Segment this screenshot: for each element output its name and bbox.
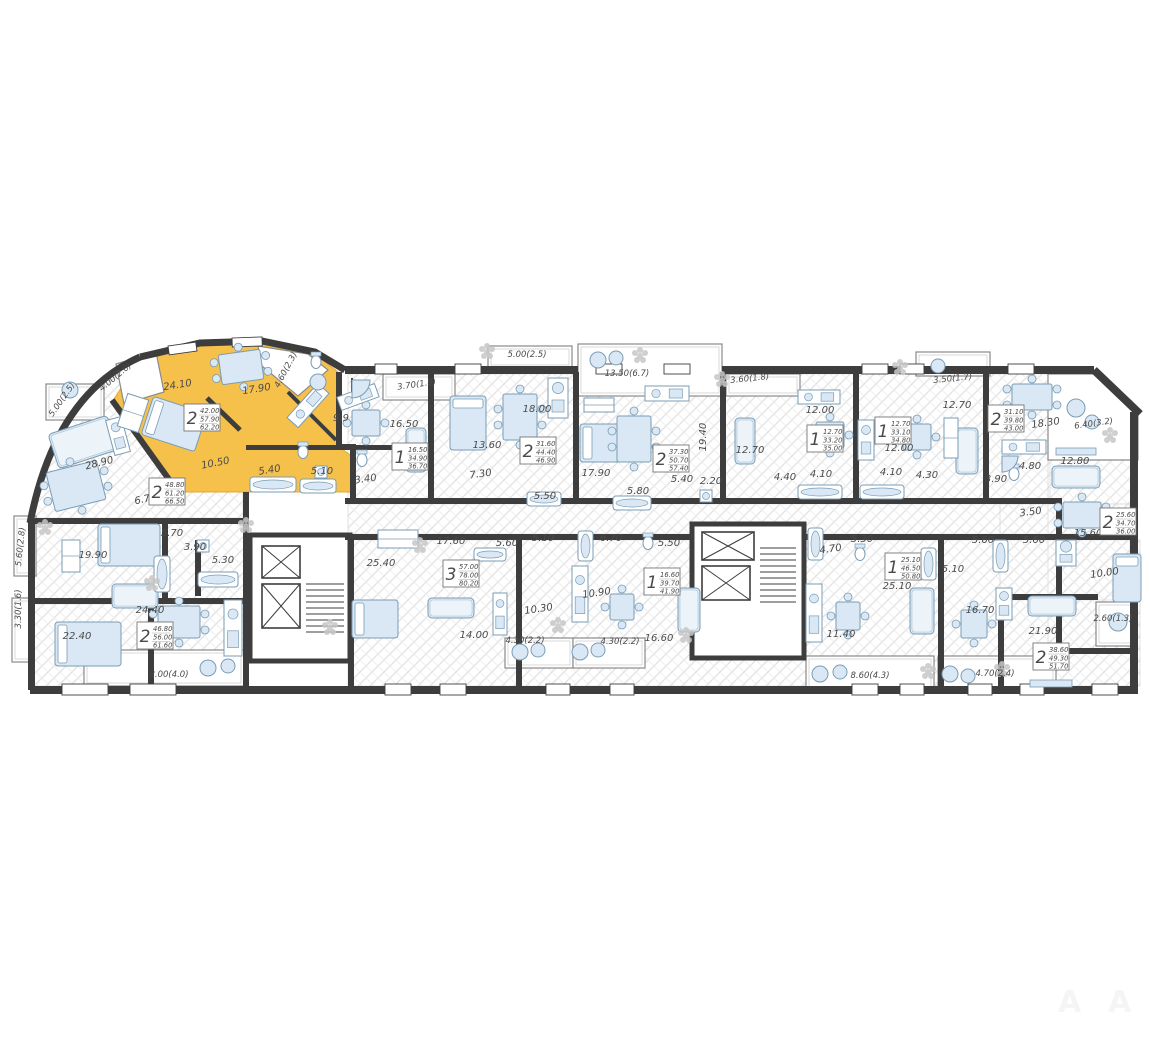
room-area-label: 5.50: [658, 538, 680, 549]
furniture: [613, 496, 651, 510]
furniture: [798, 390, 840, 404]
wall: [573, 372, 579, 502]
window: [440, 684, 466, 695]
balcony-chair-icon: [590, 352, 606, 368]
apartment-area-value: 16.50: [408, 446, 427, 454]
chair-icon: [175, 597, 183, 605]
furniture: [645, 386, 689, 401]
apartment-area-value: 43.00: [1004, 425, 1023, 433]
room-area-label: 5.60: [972, 535, 994, 546]
chair-icon: [1054, 519, 1062, 527]
room-area-label: 4.30: [916, 470, 938, 481]
floor-plan-page: 28.9019.906.705.705.00(2.5)5.60(2.8)248.…: [0, 0, 1150, 1040]
room-area-label: 22.40: [63, 631, 92, 642]
apartment-rooms-count: 2: [656, 450, 667, 470]
room-area-label: 6.70: [600, 533, 622, 544]
balcony-chair-icon: [812, 666, 828, 682]
balcony-area-label: 2.60(1.3): [1093, 614, 1132, 624]
room-area-label: 16.60: [645, 633, 674, 644]
room-area-label: 5.30: [851, 534, 873, 545]
room-area-label: 14.00: [460, 630, 489, 641]
room-area-label: 11.40: [827, 629, 856, 640]
furniture: [921, 548, 936, 580]
chair-icon: [1028, 375, 1036, 383]
apartment-rooms-count: 1: [888, 558, 899, 578]
chair-icon: [618, 621, 626, 629]
furniture: [735, 418, 755, 464]
wall: [516, 540, 522, 686]
apartment-area-value: 16.60: [660, 571, 679, 579]
room-area-label: 5.10: [942, 564, 964, 575]
apartment-area-value: 25.60: [1116, 511, 1135, 519]
room-area-label: 12.80: [1061, 456, 1090, 467]
furniture: [1056, 540, 1076, 566]
apartment-area-value: 50.70: [669, 457, 688, 465]
balcony-area-label: 13.50(6.7): [605, 369, 649, 379]
balcony-area-label: 8.00(4.0): [149, 670, 188, 680]
wall: [30, 518, 246, 524]
furniture: [578, 531, 593, 561]
apartment-area-value: 46.90: [536, 457, 555, 465]
room-area-label: 5.40: [671, 474, 693, 485]
apartment-rooms-count: 2: [523, 442, 534, 462]
tv-icon: [1030, 680, 1072, 687]
wall: [428, 372, 434, 502]
room-area-label: 5.10: [311, 466, 333, 477]
chair-icon: [652, 427, 660, 435]
chair-icon: [861, 612, 869, 620]
apartment-area-value: 12.70: [823, 428, 842, 436]
chair-icon: [630, 407, 638, 415]
room-area-label: 12.70: [943, 400, 972, 411]
furniture: [1113, 554, 1141, 602]
furniture: [352, 600, 398, 638]
balcony-chair-icon: [572, 644, 588, 660]
furniture: [224, 600, 242, 656]
balcony-chair-icon: [221, 659, 235, 673]
window: [664, 364, 690, 374]
floor-plan: 28.9019.906.705.705.00(2.5)5.60(2.8)248.…: [0, 0, 1150, 1040]
apartment-area-value: 34.90: [408, 455, 427, 463]
chair-icon: [1053, 401, 1061, 409]
chair-icon: [1078, 493, 1086, 501]
furniture: [860, 485, 904, 499]
room-area-label: 15.60: [1074, 528, 1103, 539]
tv-icon: [1056, 448, 1096, 455]
chair-icon: [1054, 503, 1062, 511]
chair-icon: [845, 431, 853, 439]
chair-icon: [362, 437, 370, 445]
furniture: [55, 622, 121, 666]
apartment-area-value: 62.20: [200, 424, 219, 432]
wall: [246, 445, 396, 450]
balcony-chair-icon: [942, 666, 958, 682]
wall: [938, 540, 944, 686]
apartment-area-value: 31.60: [536, 440, 555, 448]
furniture: [993, 540, 1008, 572]
chair-icon: [952, 620, 960, 628]
apartment-area-value: 36.70: [408, 463, 427, 471]
toilet-icon: [298, 446, 308, 459]
balcony-area-label: 3.30(1.6): [14, 589, 24, 628]
room-area-label: 12.00: [885, 443, 914, 454]
apartment-area-value: 39.80: [1004, 417, 1023, 425]
room-area-label: 9.9: [333, 413, 349, 424]
room-area-label: 4.10: [880, 467, 902, 478]
chair-icon: [175, 639, 183, 647]
chair-icon: [608, 427, 616, 435]
apartment-rooms-count: 2: [991, 410, 1002, 430]
chair-icon: [844, 593, 852, 601]
apartment-label[interactable]: 112.7033.1034.80: [875, 417, 911, 445]
apartment-area-value: 49.30: [1049, 655, 1068, 663]
apartment-area-value: 36.00: [1116, 528, 1135, 536]
apartment-rooms-count: 2: [187, 409, 198, 429]
apartment-area-value: 37.30: [669, 448, 688, 456]
apartment-area-value: 12.70: [891, 420, 910, 428]
apartment-area-value: 33.10: [891, 429, 910, 437]
room-area-label: 18.00: [523, 404, 552, 415]
chair-icon: [201, 626, 209, 634]
room-area-label: 24.40: [136, 605, 165, 616]
balcony-chair-icon: [931, 359, 945, 373]
table-icon: [503, 394, 537, 440]
room-area-label: 16.50: [390, 419, 419, 430]
furniture: [198, 572, 238, 587]
apartment-area-value: 33.20: [823, 437, 842, 445]
window: [862, 364, 888, 374]
balcony-area-label: 8.60(4.3): [850, 671, 889, 681]
balcony-chair-icon: [833, 665, 847, 679]
window: [385, 684, 411, 695]
room-area-label: 12.00: [806, 405, 835, 416]
apartment-area-value: 57.40: [669, 465, 688, 473]
apartment-area-value: 78.00: [459, 572, 478, 580]
room-area-label: 19.40: [698, 423, 709, 452]
furniture: [1028, 596, 1076, 616]
balcony-chair-icon: [609, 351, 623, 365]
apartment-area-value: 34.70: [1116, 520, 1135, 528]
room-area-label: 3.90: [985, 474, 1007, 485]
chair-icon: [494, 421, 502, 429]
window: [62, 684, 108, 695]
furniture: [300, 479, 336, 493]
watermark-logo: A: [1108, 985, 1131, 1020]
furniture: [944, 418, 958, 458]
apartment-area-value: 34.80: [891, 437, 910, 445]
furniture: [910, 588, 934, 634]
room-area-label: 5.60: [1023, 535, 1045, 546]
furniture: [474, 548, 506, 561]
window: [1092, 684, 1118, 695]
furniture: [493, 593, 507, 635]
wall: [350, 444, 356, 502]
room-area-label: 25.40: [367, 558, 396, 569]
room-area-label: 21.90: [1029, 626, 1058, 637]
chair-icon: [932, 433, 940, 441]
balcony-chair-icon: [961, 669, 975, 683]
room-area-label: 4.40: [774, 472, 796, 483]
apartment-label[interactable]: 112.7033.2035.00: [807, 425, 843, 453]
room-area-label: 5.60: [496, 538, 518, 549]
furniture: [806, 584, 822, 642]
apartment-label[interactable]: 237.3050.7057.40: [653, 445, 689, 473]
room-area-label: 13.60: [473, 440, 502, 451]
chair-icon: [601, 603, 609, 611]
furniture: [584, 398, 614, 412]
room-area-label: 2.20: [700, 476, 722, 487]
furniture: [62, 540, 80, 572]
window: [546, 684, 570, 695]
apartment-label[interactable]: 116.5034.9036.70: [392, 443, 428, 471]
apartment-area-value: 48.80: [165, 481, 184, 489]
window: [455, 364, 481, 374]
furniture: [378, 530, 418, 548]
balcony-area-label: 4.70(2.4): [975, 669, 1014, 679]
room-area-label: 5.50: [534, 491, 556, 502]
balcony-chair-icon: [512, 644, 528, 660]
table-icon: [617, 416, 651, 462]
balcony-area-label: 5.00(2.5): [507, 350, 546, 360]
table-icon: [836, 602, 860, 630]
apartment-area-value: 50.80: [901, 573, 920, 581]
table-icon: [610, 594, 634, 620]
window: [852, 684, 878, 695]
room-area-label: 4.10: [810, 469, 832, 480]
apartment-label[interactable]: 238.6049.3051.70: [1033, 643, 1069, 671]
apartment-label[interactable]: 246.8056.0061.60: [137, 622, 173, 650]
chair-icon: [494, 405, 502, 413]
room-area-label: 25.10: [883, 581, 912, 592]
room-area-label: 3.90: [184, 542, 206, 553]
apartment-area-value: 46.80: [153, 625, 172, 633]
room-area-label: 12.70: [736, 445, 765, 456]
apartment-area-value: 66.50: [165, 498, 184, 506]
furniture: [996, 588, 1012, 620]
chair-icon: [988, 620, 996, 628]
chair-icon: [827, 612, 835, 620]
apartment-rooms-count: 2: [152, 483, 163, 503]
room-area-label: 5.10: [532, 533, 554, 544]
chair-icon: [630, 463, 638, 471]
balcony-area-label: 4.30(2.2): [600, 637, 639, 647]
apartment-area-value: 39.70: [660, 580, 679, 588]
chair-icon: [516, 385, 524, 393]
apartment-area-value: 61.60: [153, 642, 172, 650]
table-icon: [1063, 502, 1101, 528]
furniture: [428, 598, 474, 618]
window: [375, 364, 397, 374]
room-area-label: 16.70: [966, 605, 995, 616]
apartment-label[interactable]: 248.8061.2066.50: [149, 478, 185, 506]
apartment-label[interactable]: 125.1046.5050.80: [885, 553, 921, 581]
apartment-area-value: 35.00: [823, 445, 842, 453]
chair-icon: [970, 639, 978, 647]
apartment-area-value: 57.90: [200, 416, 219, 424]
apartment-label[interactable]: 231.1039.8043.00: [988, 405, 1024, 433]
apartment-area-value: 61.20: [165, 490, 184, 498]
apartment-rooms-count: 1: [878, 422, 889, 442]
table-icon: [218, 349, 264, 385]
chair-icon: [913, 415, 921, 423]
furniture: [956, 428, 978, 474]
toilet-icon: [357, 454, 367, 467]
apartment-area-value: 38.60: [1049, 646, 1068, 654]
apartment-area-value: 31.10: [1004, 408, 1023, 416]
furniture: [1002, 440, 1046, 454]
chair-icon: [618, 585, 626, 593]
furniture: [250, 477, 296, 492]
apartment-area-value: 57.00: [459, 563, 478, 571]
toilet-icon: [311, 356, 321, 369]
window: [1008, 364, 1034, 374]
chair-icon: [635, 603, 643, 611]
plant-icon: [479, 343, 495, 359]
balcony-chair-icon: [200, 660, 216, 676]
chair-icon: [1053, 385, 1061, 393]
window: [900, 684, 924, 695]
apartment-rooms-count: 1: [395, 448, 406, 468]
chair-icon: [1028, 411, 1036, 419]
room-area-label: 17.60: [437, 536, 466, 547]
apartment-area-value: 25.10: [901, 556, 920, 564]
furniture: [798, 485, 842, 499]
apartment-area-value: 42.00: [200, 407, 219, 415]
apartment-area-value: 46.50: [901, 565, 920, 573]
table-icon: [352, 410, 380, 436]
window: [968, 684, 992, 695]
apartment-rooms-count: 1: [810, 430, 821, 450]
room-area-label: 5.30: [212, 555, 234, 566]
chair-icon: [538, 421, 546, 429]
room-area-label: 5.80: [627, 486, 649, 497]
apartment-area-value: 44.40: [536, 449, 555, 457]
furniture: [678, 588, 700, 632]
chair-icon: [913, 451, 921, 459]
apartment-rooms-count: 2: [1036, 648, 1047, 668]
apartment-area-value: 56.00: [153, 634, 172, 642]
chair-icon: [608, 443, 616, 451]
toilet-icon: [643, 537, 653, 550]
furniture: [858, 420, 874, 460]
watermark-logo: A: [1058, 985, 1081, 1020]
balcony-chair-icon: [310, 374, 326, 390]
toilet-icon: [855, 548, 865, 561]
apartment-rooms-count: 1: [647, 573, 658, 593]
apartment-area-value: 51.70: [1049, 663, 1068, 671]
balcony-area-label: 4.30(2.2): [505, 636, 544, 646]
apartment-label[interactable]: 116.6039.7041.90: [644, 568, 680, 596]
apartment-rooms-count: 3: [446, 565, 457, 585]
chair-icon: [201, 610, 209, 618]
chair-icon: [381, 419, 389, 427]
apartment-label[interactable]: 357.0078.0080.20: [443, 560, 479, 588]
apartment-label[interactable]: 225.6034.7036.00: [1100, 508, 1136, 536]
room-area-label: 5.70: [161, 528, 183, 539]
room-area-label: 19.90: [79, 550, 108, 561]
apartment-label[interactable]: 231.6044.4046.90: [520, 437, 556, 465]
furniture: [1052, 466, 1100, 488]
room-area-label: 17.90: [582, 468, 611, 479]
apartment-rooms-count: 2: [140, 627, 151, 647]
chair-icon: [1003, 385, 1011, 393]
apartment-area-value: 80.20: [459, 580, 478, 588]
window: [130, 684, 176, 695]
window: [610, 684, 634, 695]
apartment-label[interactable]: 242.0057.9062.20: [184, 404, 220, 432]
apartment-rooms-count: 2: [1103, 513, 1114, 533]
balcony-chair-icon: [1067, 399, 1085, 417]
room-area-label: 4.80: [1019, 461, 1041, 472]
apartment-area-value: 41.90: [660, 588, 679, 596]
